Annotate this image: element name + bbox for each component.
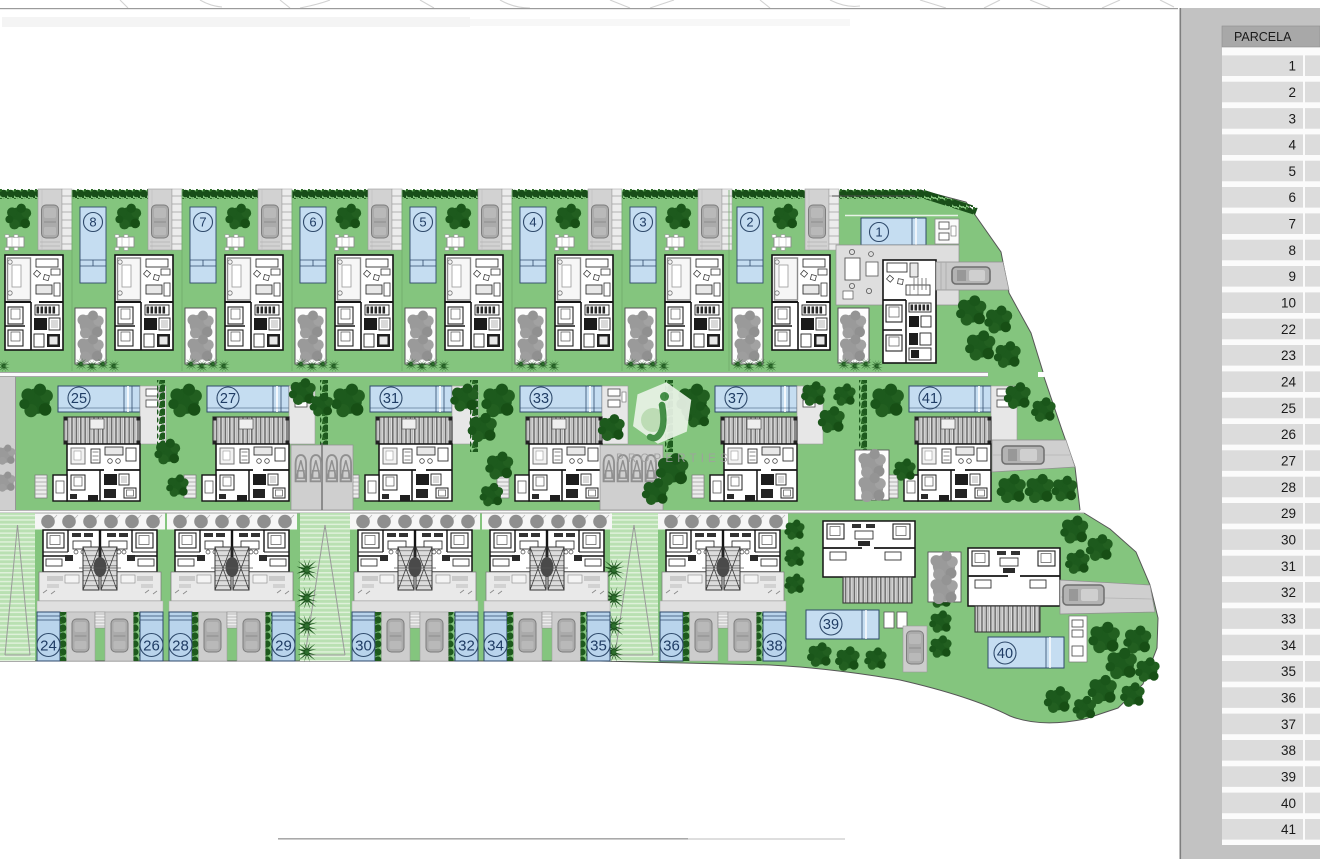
svg-text:7: 7 (1288, 217, 1296, 232)
svg-text:3: 3 (1288, 111, 1296, 126)
svg-text:24: 24 (1281, 375, 1297, 390)
svg-text:8: 8 (89, 215, 96, 230)
svg-text:39: 39 (823, 617, 839, 633)
svg-text:35: 35 (1281, 664, 1296, 679)
svg-text:30: 30 (1281, 533, 1296, 548)
svg-text:PARCELA: PARCELA (1234, 30, 1292, 44)
svg-text:27: 27 (1281, 454, 1296, 469)
svg-text:23: 23 (1281, 348, 1296, 363)
svg-text:33: 33 (1281, 612, 1296, 627)
svg-text:32: 32 (1281, 585, 1296, 600)
svg-text:35: 35 (590, 638, 607, 655)
svg-text:39: 39 (1281, 770, 1296, 785)
svg-text:29: 29 (275, 638, 292, 655)
svg-text:29: 29 (1281, 506, 1296, 521)
svg-text:41: 41 (922, 391, 938, 407)
svg-text:36: 36 (663, 638, 680, 655)
svg-text:37: 37 (728, 391, 744, 407)
svg-text:10: 10 (1281, 296, 1296, 311)
svg-text:36: 36 (1281, 691, 1296, 706)
svg-text:7: 7 (199, 215, 206, 230)
svg-text:25: 25 (71, 391, 87, 407)
svg-text:26: 26 (1281, 427, 1296, 442)
svg-text:4: 4 (1288, 138, 1296, 153)
svg-text:27: 27 (220, 391, 236, 407)
svg-text:40: 40 (997, 646, 1013, 662)
svg-text:8: 8 (1288, 243, 1296, 258)
svg-text:2: 2 (1288, 85, 1296, 100)
svg-text:30: 30 (355, 638, 372, 655)
svg-text:2: 2 (746, 215, 753, 230)
svg-text:31: 31 (383, 391, 399, 407)
svg-text:31: 31 (1281, 559, 1296, 574)
svg-text:1: 1 (1288, 59, 1296, 74)
svg-text:9: 9 (1288, 269, 1296, 284)
svg-text:34: 34 (487, 638, 504, 655)
svg-text:41: 41 (1281, 822, 1296, 837)
svg-text:6: 6 (309, 215, 316, 230)
svg-text:34: 34 (1281, 638, 1297, 653)
svg-text:22: 22 (1281, 322, 1296, 337)
svg-text:38: 38 (1281, 743, 1296, 758)
svg-text:1: 1 (875, 225, 882, 240)
svg-text:32: 32 (458, 638, 475, 655)
svg-text:24: 24 (40, 638, 57, 655)
svg-text:28: 28 (1281, 480, 1296, 495)
svg-text:26: 26 (143, 638, 160, 655)
svg-text:40: 40 (1281, 796, 1296, 811)
svg-text:37: 37 (1281, 717, 1296, 732)
svg-text:5: 5 (1288, 164, 1296, 179)
svg-text:6: 6 (1288, 190, 1296, 205)
svg-text:5: 5 (419, 215, 426, 230)
svg-text:25: 25 (1281, 401, 1296, 416)
svg-text:PROPERTIES: PROPERTIES (616, 453, 732, 465)
svg-text:38: 38 (766, 638, 783, 655)
svg-text:4: 4 (529, 215, 536, 230)
svg-text:33: 33 (533, 391, 549, 407)
svg-text:3: 3 (639, 215, 646, 230)
svg-text:28: 28 (172, 638, 189, 655)
